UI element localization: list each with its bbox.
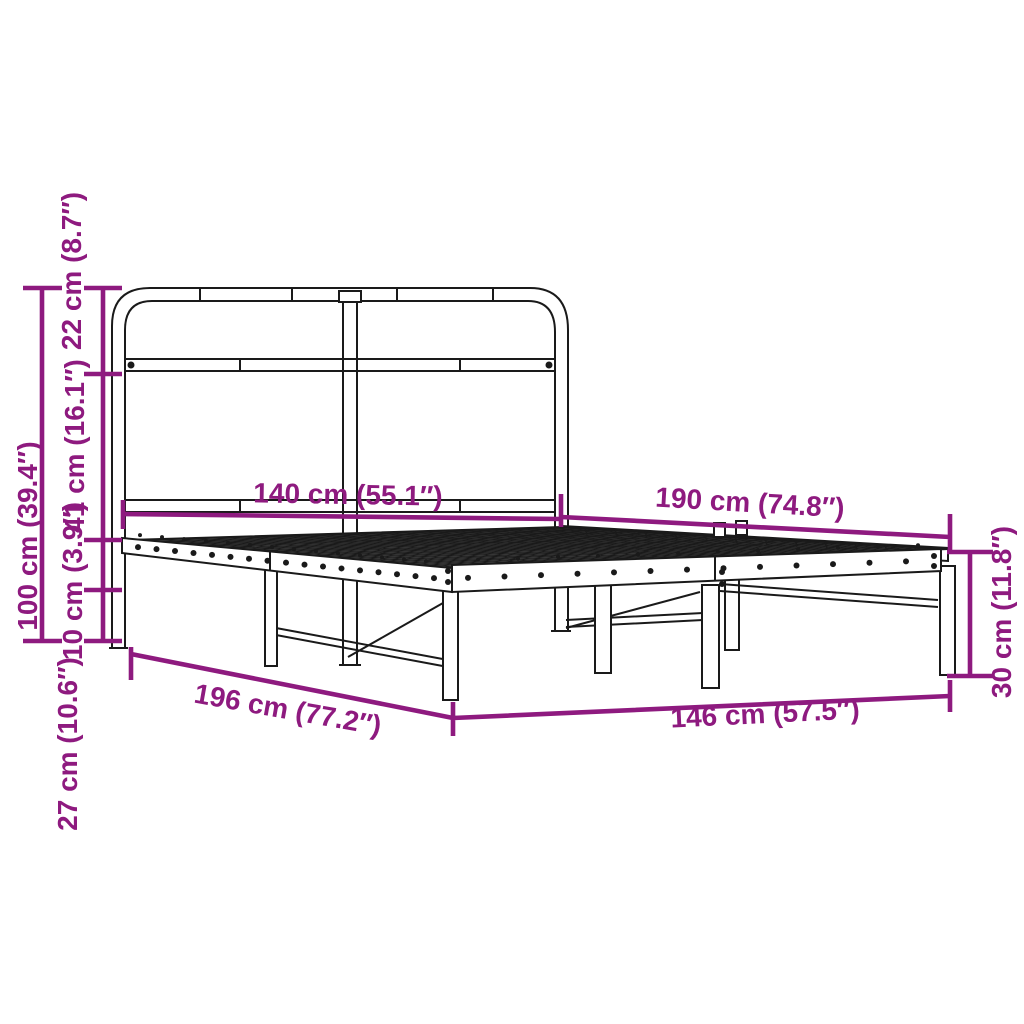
dimension-label-footend-height: 30 cm (11.8″) [986, 526, 1017, 698]
front-corner-leg [443, 584, 458, 700]
foot-mid-leg [702, 585, 719, 688]
dimension-label-headboard-width: 140 cm (55.1″) [253, 477, 443, 511]
foot-corner-leg [940, 566, 955, 675]
dimension-label-headboard-height: 100 cm (39.4″) [12, 441, 43, 630]
dimension-label-rail-height: 10 cm (3.9″) [57, 502, 88, 660]
dimension-label-headboard-top-section: 22 cm (8.7″) [56, 192, 87, 350]
bed-frame-dimension-diagram: 140 cm (55.1″) 190 cm (74.8″) 100 cm (39… [0, 0, 1024, 1024]
dimension-label-under-bed-clearance: 27 cm (10.6″) [52, 657, 83, 831]
rear-support-leg [725, 577, 739, 650]
diagram-canvas: 140 cm (55.1″) 190 cm (74.8″) 100 cm (39… [0, 0, 1024, 1024]
far-mid-leg [595, 585, 611, 673]
